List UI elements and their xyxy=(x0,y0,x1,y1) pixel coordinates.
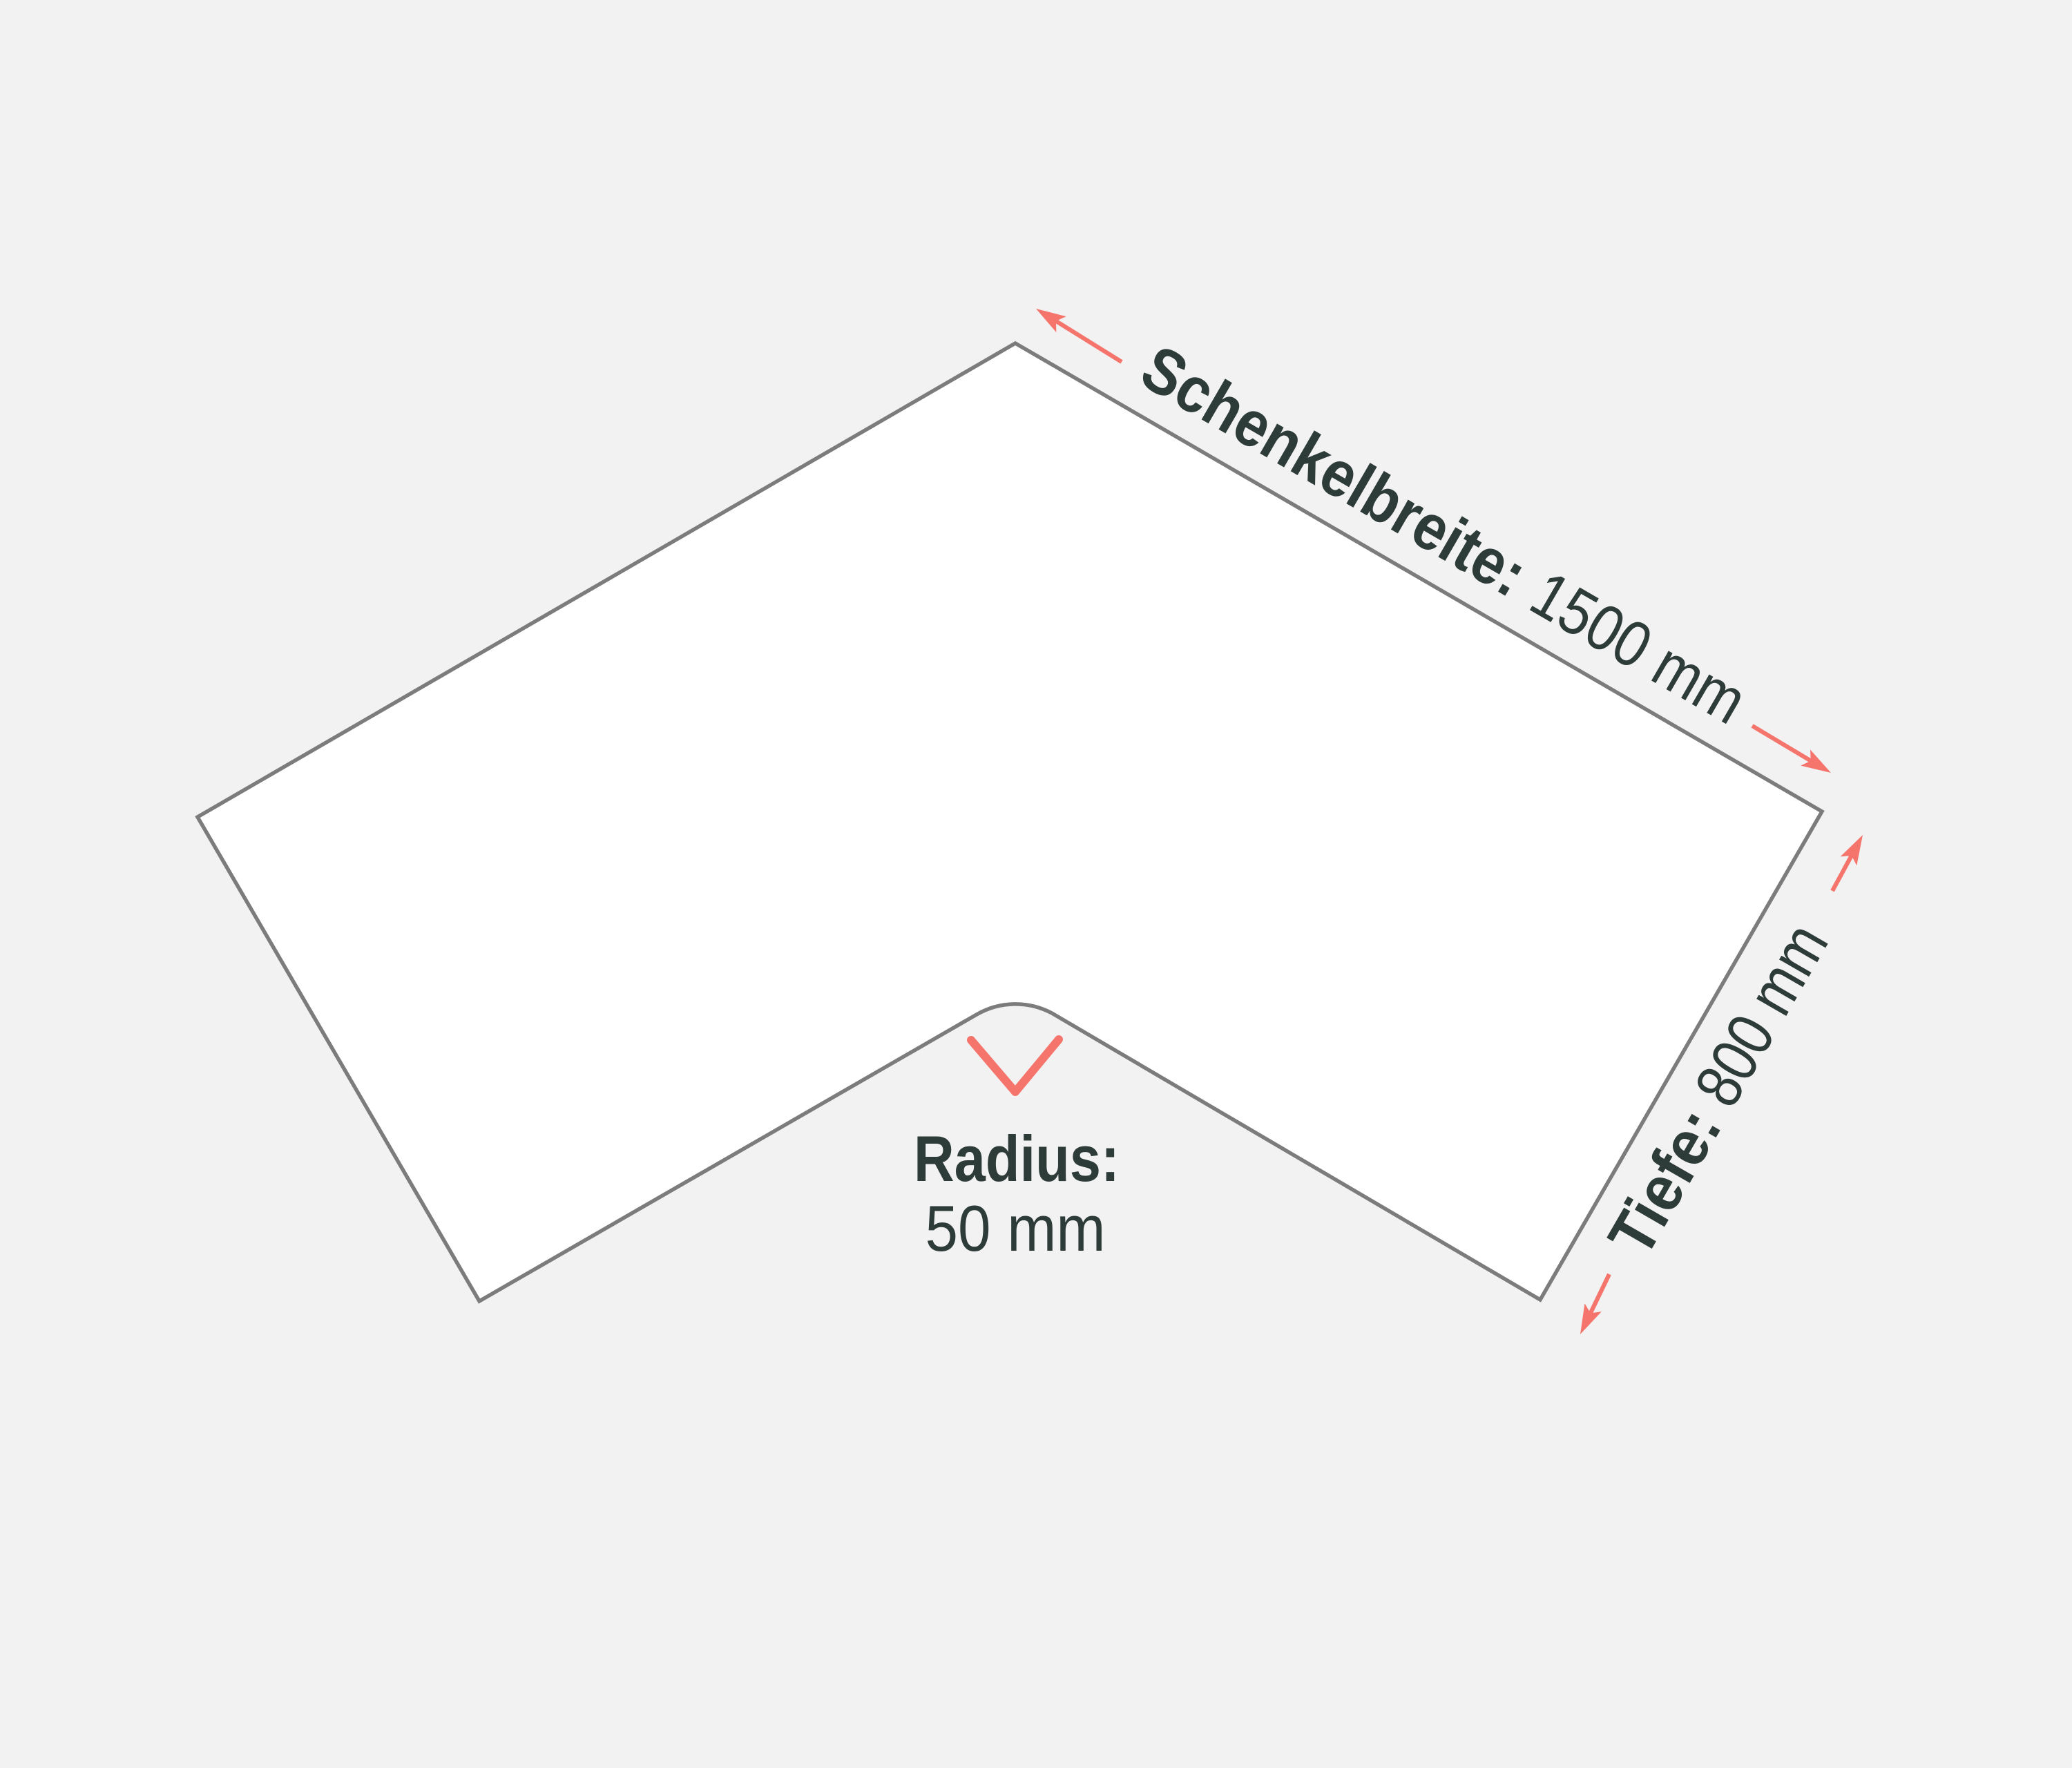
svg-text:50 mm: 50 mm xyxy=(925,1192,1106,1265)
svg-text:Radius:: Radius: xyxy=(914,1122,1120,1195)
